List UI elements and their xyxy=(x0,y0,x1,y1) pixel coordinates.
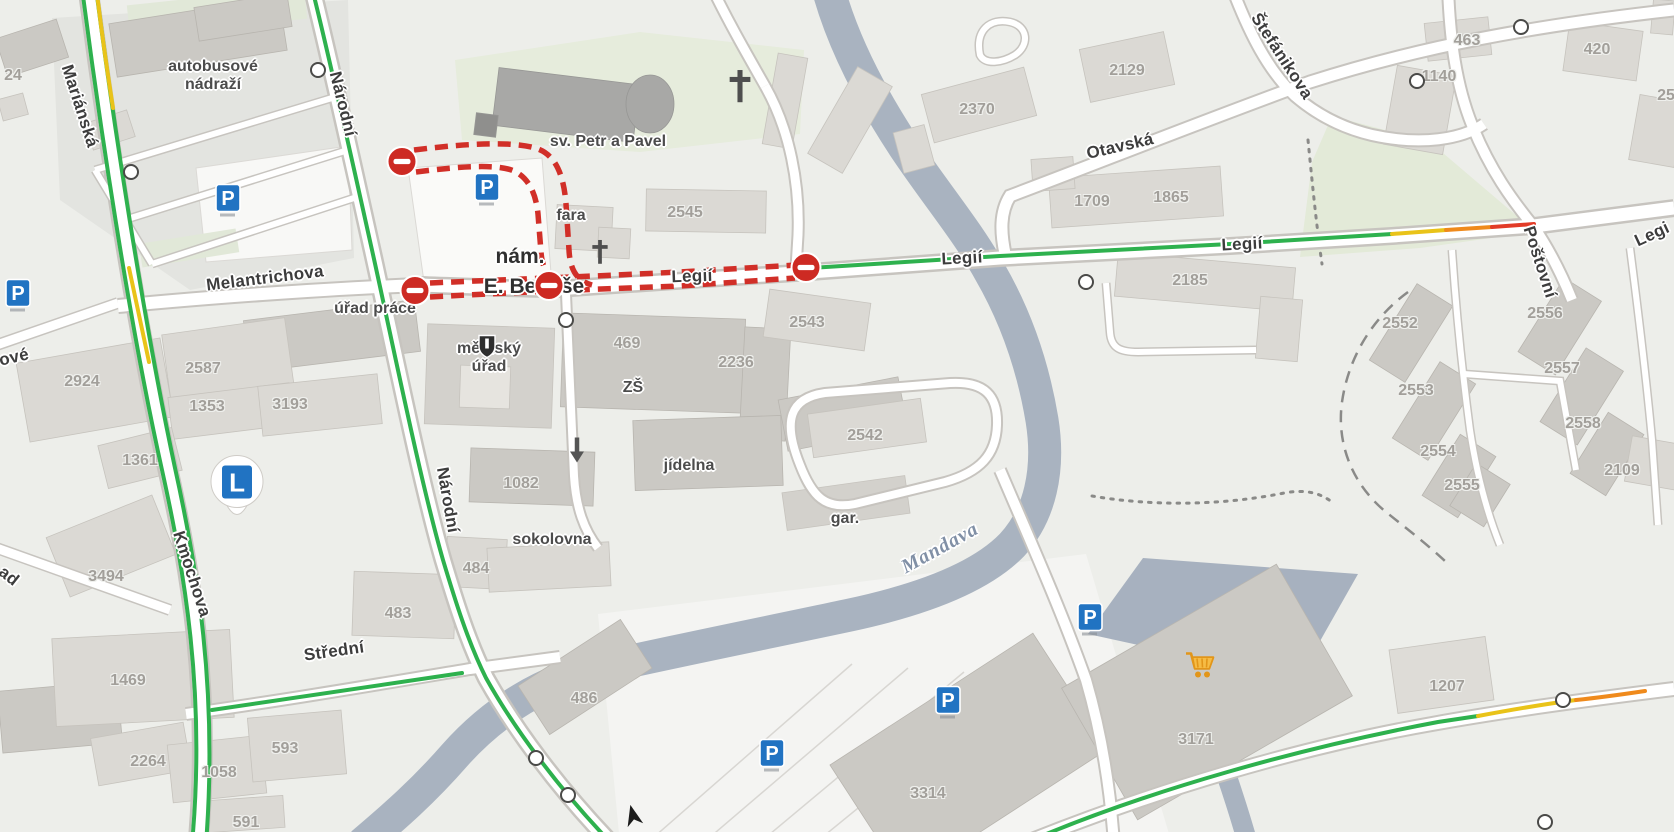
map-base-graphics xyxy=(0,0,1674,832)
poi-node[interactable] xyxy=(123,164,139,180)
parking-icon[interactable]: P xyxy=(212,181,244,224)
parking-icon[interactable]: P xyxy=(932,683,964,726)
svg-text:L: L xyxy=(229,468,245,498)
no-entry-icon[interactable] xyxy=(398,274,432,313)
parking-icon[interactable]: P xyxy=(2,276,34,319)
svg-text:P: P xyxy=(480,177,493,199)
poi-node[interactable] xyxy=(1513,19,1529,35)
parking-icon[interactable]: P xyxy=(756,736,788,779)
poi-node[interactable] xyxy=(560,787,576,803)
no-entry-icon[interactable] xyxy=(789,251,823,290)
supermarket-cart-icon[interactable] xyxy=(1182,647,1218,686)
svg-text:P: P xyxy=(941,690,954,712)
svg-text:P: P xyxy=(1083,607,1096,629)
church-cross-icon xyxy=(726,68,754,111)
poi-node[interactable] xyxy=(558,312,574,328)
poi-node[interactable] xyxy=(1078,274,1094,290)
poi-node[interactable] xyxy=(1555,692,1571,708)
no-entry-icon[interactable] xyxy=(385,145,419,184)
poi-node[interactable] xyxy=(310,62,326,78)
black-arrow-icon xyxy=(622,804,644,832)
svg-text:P: P xyxy=(221,188,234,210)
poi-node[interactable] xyxy=(1537,814,1553,830)
oneway-arrow-icon xyxy=(566,435,588,470)
parking-icon[interactable]: P xyxy=(1074,600,1106,643)
poi-node[interactable] xyxy=(528,750,544,766)
poi-node[interactable] xyxy=(1409,73,1425,89)
city-shield-icon xyxy=(476,334,498,365)
parking-icon[interactable]: P xyxy=(471,170,503,213)
map-canvas[interactable]: MariánskáNárodníNárodníMelantrichovaKmoc… xyxy=(0,0,1674,832)
svg-text:P: P xyxy=(11,283,24,305)
svg-text:P: P xyxy=(765,743,778,765)
no-entry-icon[interactable] xyxy=(532,269,566,308)
church-cross-icon xyxy=(590,238,610,269)
driving-school-icon[interactable]: L xyxy=(206,452,268,533)
